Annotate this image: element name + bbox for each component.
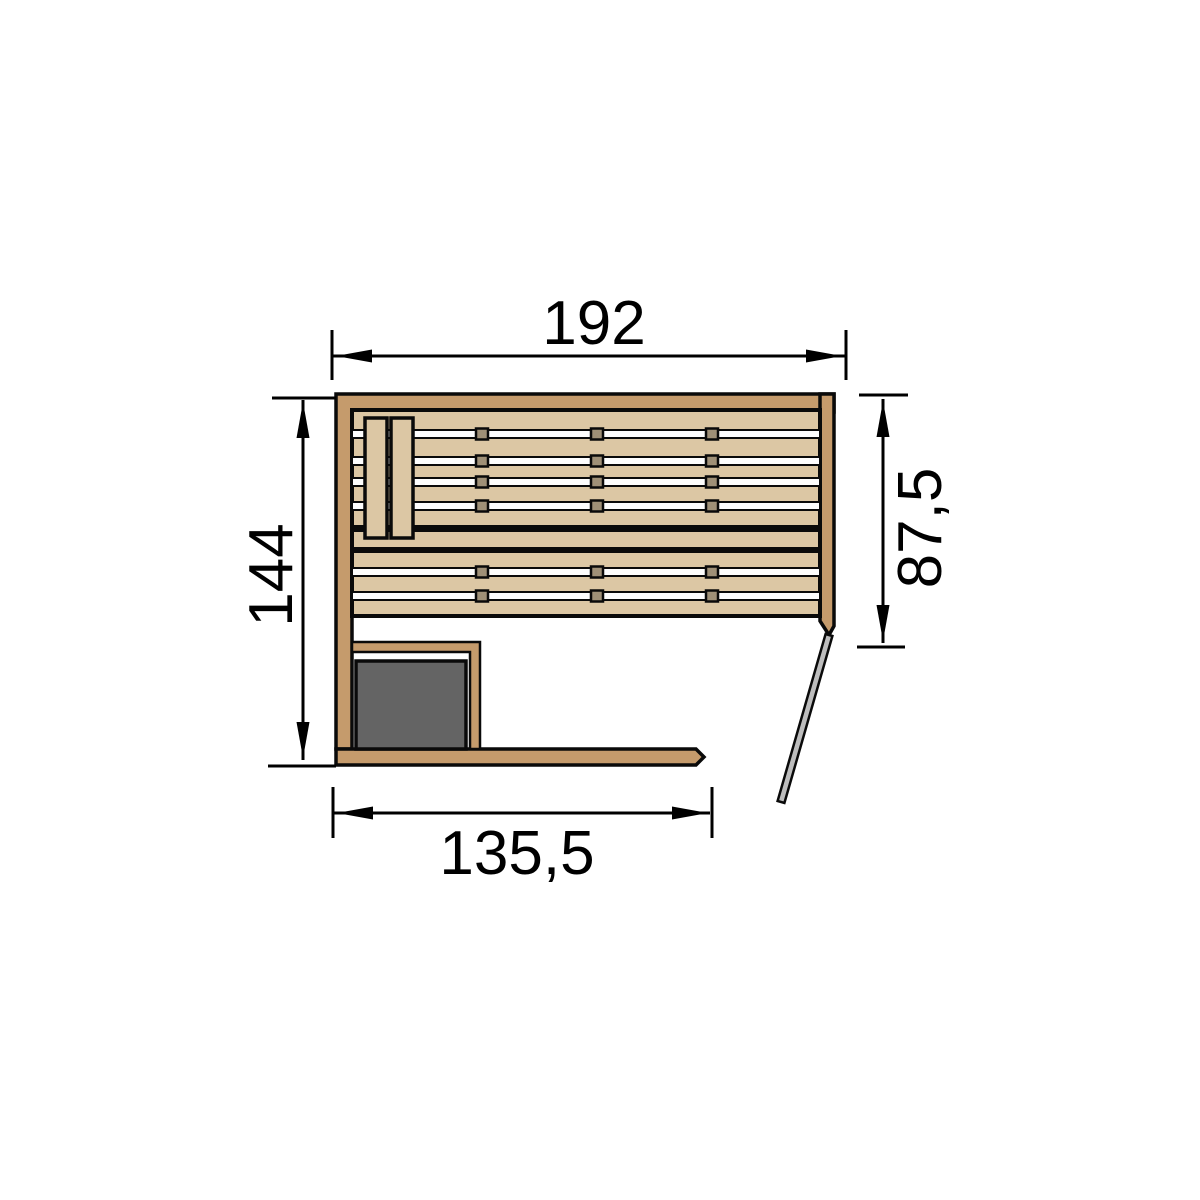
slat-joint [706,456,718,467]
headrest-plank [365,418,387,538]
slat-joint [476,501,488,512]
slat-joint [706,429,718,440]
slat-joint [591,456,603,467]
bench-edge-groove [352,525,820,532]
slat-joint [591,477,603,488]
slat-joint [476,567,488,578]
bench-surface [352,410,820,616]
sauna-floor-plan: 192 144 87,5 135,5 [0,0,1200,1200]
slat-joint [476,591,488,602]
bottom-wall [336,749,704,765]
slat-gap [352,478,820,486]
bench [352,410,820,616]
slat-gap [352,502,820,510]
dimension-label-right: 87,5 [886,468,955,589]
slat-joint [591,567,603,578]
slat-joint [706,477,718,488]
slat-joint [706,501,718,512]
slat-joint [476,456,488,467]
slat-joint [591,591,603,602]
heater [356,661,466,749]
slat-joint [476,429,488,440]
dimension-label-left: 144 [237,523,306,626]
slat-joint [591,429,603,440]
dimension-label-top: 192 [542,289,645,358]
slat-joint [476,477,488,488]
dimension-label-bottom: 135,5 [439,819,594,888]
headrest-plank [391,418,413,538]
right-wall [820,394,834,635]
slat-joint [706,567,718,578]
slat-gap [352,430,820,438]
slat-joint [591,501,603,512]
sauna-floor-plan-canvas: 192 144 87,5 135,5 [0,0,1200,1200]
bench-edge-groove [352,547,820,553]
slat-gap [352,457,820,465]
slat-gap [352,568,820,576]
slat-joint [706,591,718,602]
slat-gap [352,592,820,600]
